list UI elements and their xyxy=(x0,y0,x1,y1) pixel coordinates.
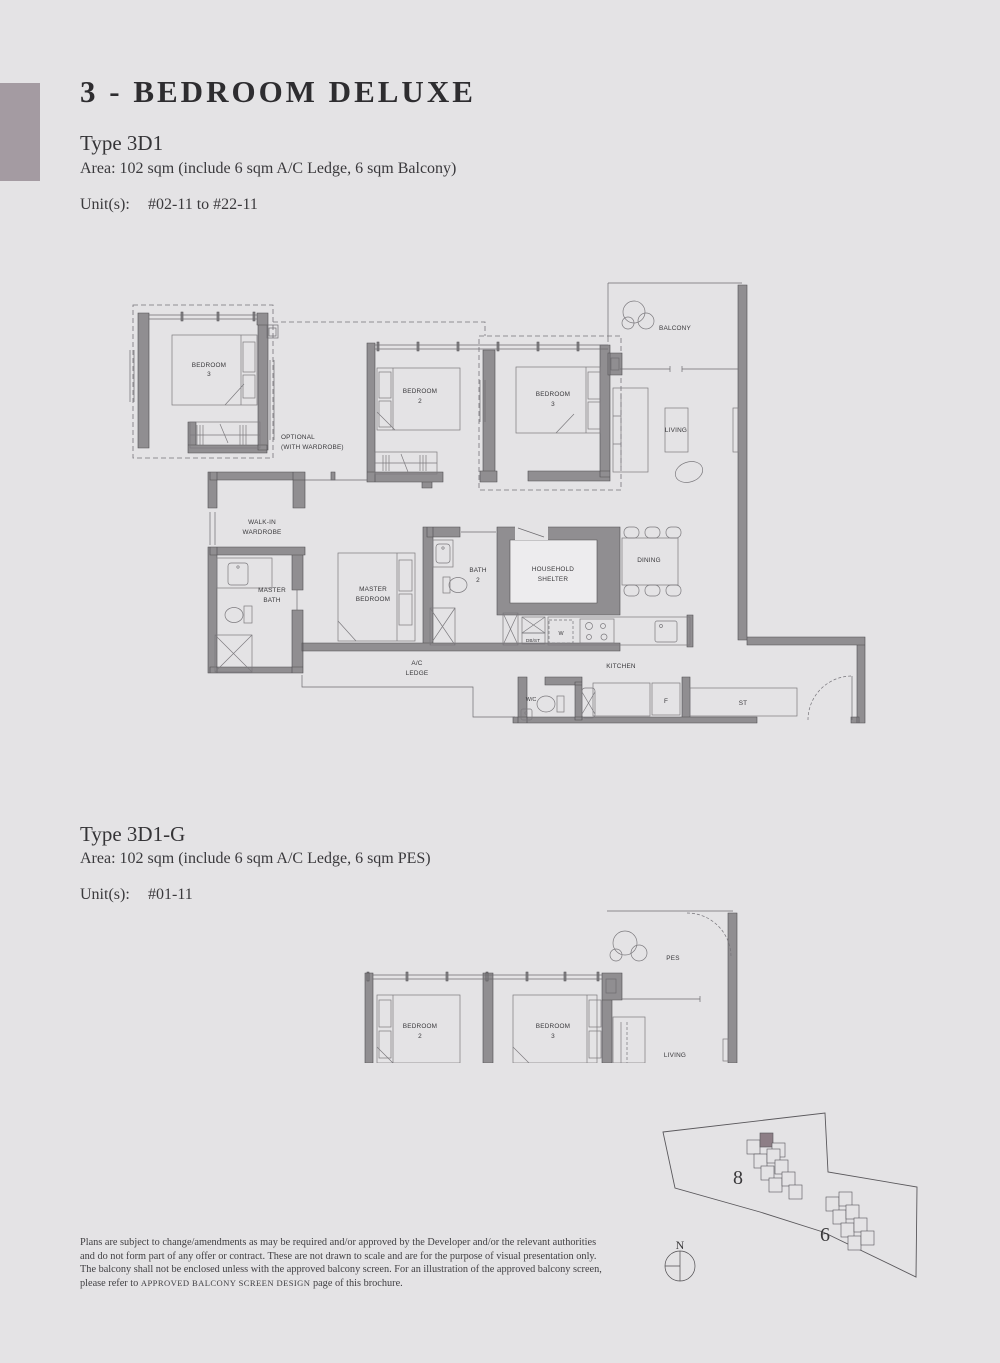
tv-console-icon xyxy=(733,408,738,452)
disclaimer-line: please refer to APPROVED BALCONY SCREEN … xyxy=(80,1277,640,1291)
units-label: Unit(s): xyxy=(80,886,148,904)
coffee-table-icon xyxy=(673,458,706,486)
pes-gate-swing xyxy=(687,913,731,957)
toilet-icon xyxy=(244,606,252,623)
type-3d1-name: Type 3D1 xyxy=(80,131,163,156)
label-bath2: BATH xyxy=(469,567,487,574)
svg-text:3: 3 xyxy=(551,1033,555,1040)
label-bedroom2: BEDROOM xyxy=(403,1023,437,1030)
svg-text:2: 2 xyxy=(418,1033,422,1040)
label-fridge: F xyxy=(664,698,668,705)
brochure-page: 3 - BEDROOM DELUXE Type 3D1 Area: 102 sq… xyxy=(0,0,1000,1363)
label-bedroom3: BEDROOM xyxy=(536,1023,570,1030)
svg-text:LEDGE: LEDGE xyxy=(406,670,429,677)
balcony-screen-reference: APPROVED BALCONY SCREEN DESIGN xyxy=(141,1278,311,1288)
units-value: #02-11 to #22-11 xyxy=(148,196,258,214)
windows-layer xyxy=(130,283,742,717)
label-wc: W/C xyxy=(526,697,537,703)
floorplan-3d1: BEDROOM 3 OPTIONAL (WITH WARDROBE) BEDRO… xyxy=(125,272,870,734)
north-arrow-icon: N xyxy=(665,1238,695,1281)
bed-icon xyxy=(172,335,257,405)
type-3d1g-units: Unit(s): #01-11 xyxy=(80,886,193,904)
label-living: LIVING xyxy=(665,427,687,434)
walls-layer xyxy=(138,285,865,723)
label-balcony: BALCONY xyxy=(659,325,691,332)
sofa-icon xyxy=(613,388,648,472)
north-label: N xyxy=(676,1238,685,1252)
site-plan: 8 6 N xyxy=(650,1100,980,1295)
sofa-icon xyxy=(613,1017,645,1063)
toilet-icon xyxy=(537,696,555,712)
accent-bar xyxy=(0,83,40,181)
plant-icon xyxy=(610,931,647,961)
highlighted-unit xyxy=(760,1133,773,1147)
label-store: ST xyxy=(739,700,748,707)
label-master-bedroom: MASTER xyxy=(359,586,387,593)
label-master-bath: MASTER xyxy=(258,587,286,594)
svg-text:2: 2 xyxy=(476,577,480,584)
label-kitchen: KITCHEN xyxy=(606,663,636,670)
units-value: #01-11 xyxy=(148,886,193,904)
label-bedroom2: BEDROOM xyxy=(403,388,437,395)
svg-text:(WITH WARDROBE): (WITH WARDROBE) xyxy=(281,444,344,451)
plant-icon xyxy=(622,301,654,329)
svg-text:WARDROBE: WARDROBE xyxy=(243,529,282,536)
svg-text:2: 2 xyxy=(418,398,422,405)
entrance-door xyxy=(808,676,852,720)
svg-text:BEDROOM: BEDROOM xyxy=(356,596,390,603)
label-pes: PES xyxy=(666,955,679,962)
label-washer: W xyxy=(558,631,564,637)
label-dining: DINING xyxy=(637,557,661,564)
type-3d1g-name: Type 3D1-G xyxy=(80,822,185,847)
floorplan-3d1g: BEDROOM 2 BEDROOM 3 PES LIVING xyxy=(350,900,750,1063)
tv-console-icon xyxy=(723,1039,728,1061)
vanity-icon xyxy=(217,558,272,588)
label-optional-bedroom3: BEDROOM xyxy=(192,362,226,369)
label-block-6: 6 xyxy=(820,1224,830,1246)
type-3d1g-area: Area: 102 sqm (include 6 sqm A/C Ledge, … xyxy=(80,850,431,868)
label-walkin-wardrobe: WALK-IN xyxy=(248,519,276,526)
disclaimer-line: The balcony shall not be enclosed unless… xyxy=(80,1263,640,1277)
sink-icon xyxy=(655,621,677,642)
label-household-shelter: HOUSEHOLD xyxy=(532,566,574,573)
svg-text:BATH: BATH xyxy=(263,597,281,604)
type-3d1-area: Area: 102 sqm (include 6 sqm A/C Ledge, … xyxy=(80,160,456,178)
furniture-layer xyxy=(377,931,728,1063)
svg-text:SHELTER: SHELTER xyxy=(538,576,569,583)
svg-text:3: 3 xyxy=(551,401,555,408)
counter xyxy=(593,683,650,716)
room-labels: BEDROOM 2 BEDROOM 3 PES LIVING xyxy=(403,955,686,1059)
label-dbst: DB/ST xyxy=(526,638,540,644)
disclaimer-line: Plans are subject to change/amendments a… xyxy=(80,1236,640,1250)
page-title: 3 - BEDROOM DELUXE xyxy=(80,74,476,110)
units-label: Unit(s): xyxy=(80,196,148,214)
label-block-8: 8 xyxy=(733,1167,743,1189)
label-optional: OPTIONAL xyxy=(281,434,315,441)
disclaimer: Plans are subject to change/amendments a… xyxy=(80,1236,640,1290)
block-6-footprint xyxy=(826,1192,874,1250)
stove-icon xyxy=(580,619,614,643)
label-bedroom3: BEDROOM xyxy=(536,391,570,398)
disclaimer-line: and do not form part of any offer or con… xyxy=(80,1250,640,1264)
bed-icon xyxy=(516,367,600,433)
block-8-footprint xyxy=(747,1133,802,1199)
svg-text:3: 3 xyxy=(207,371,211,378)
type-3d1-units: Unit(s): #02-11 to #22-11 xyxy=(80,196,258,214)
walls-layer xyxy=(365,913,737,1063)
label-ac-ledge: A/C xyxy=(411,660,422,667)
label-living: LIVING xyxy=(664,1052,686,1059)
